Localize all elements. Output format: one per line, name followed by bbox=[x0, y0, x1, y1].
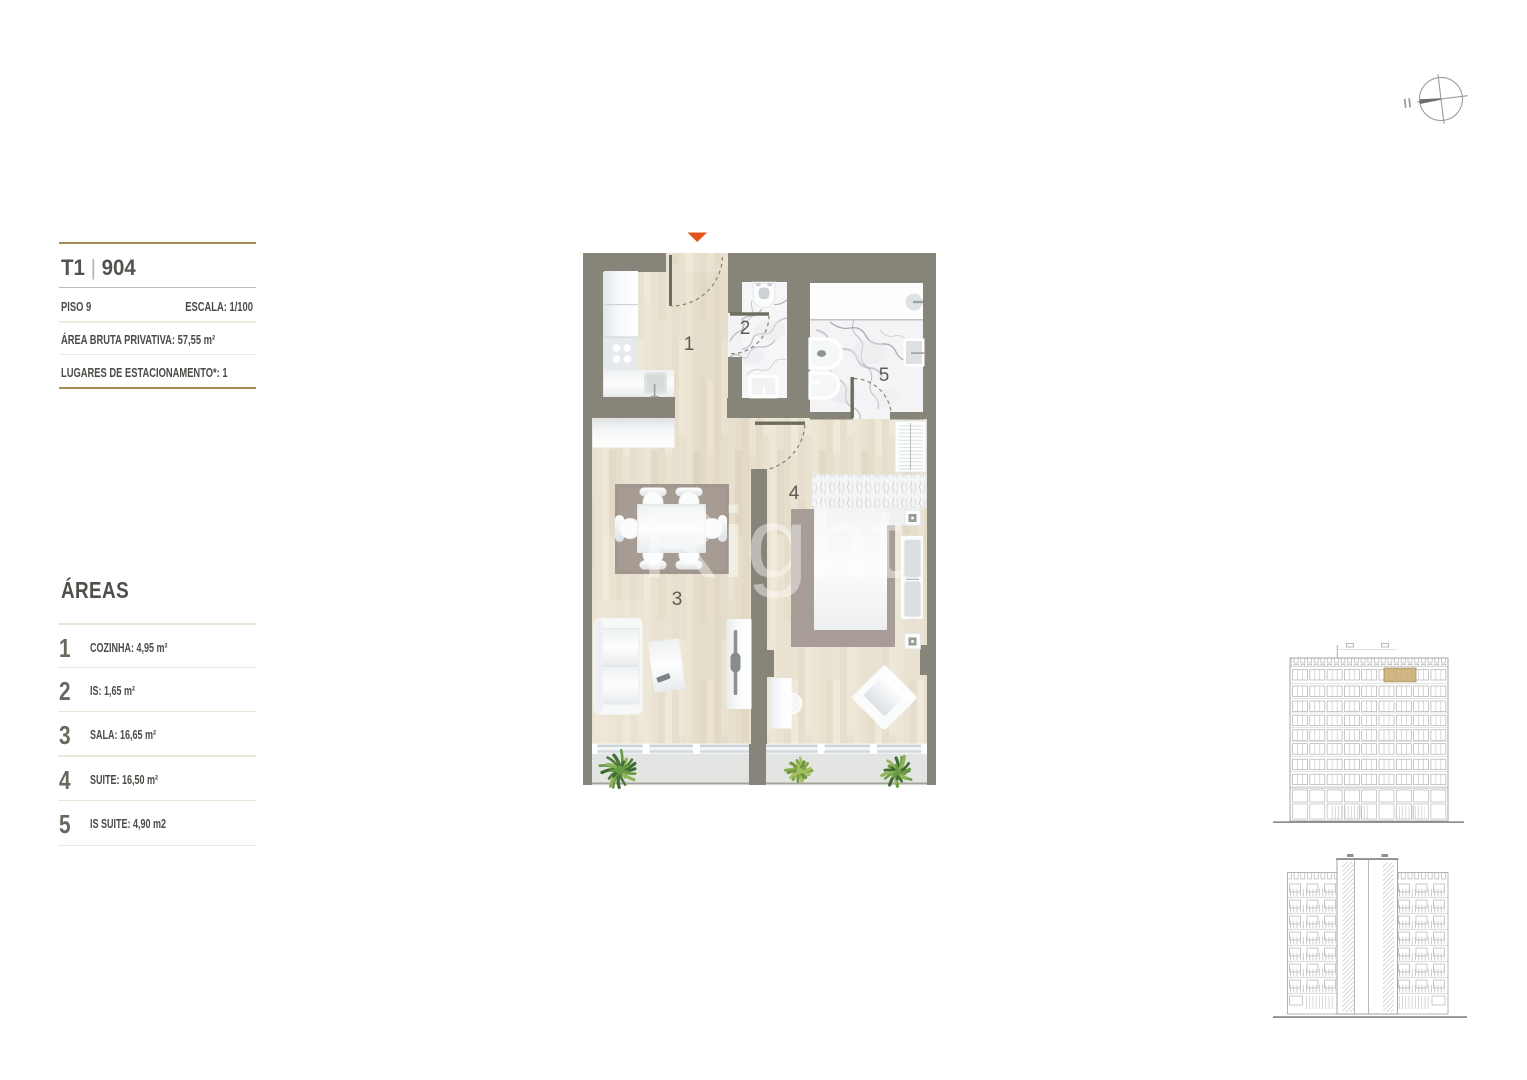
svg-text:2: 2 bbox=[740, 318, 751, 339]
svg-text:Right: Right bbox=[640, 487, 902, 599]
svg-text:1: 1 bbox=[684, 334, 695, 355]
svg-text:5: 5 bbox=[879, 365, 890, 386]
